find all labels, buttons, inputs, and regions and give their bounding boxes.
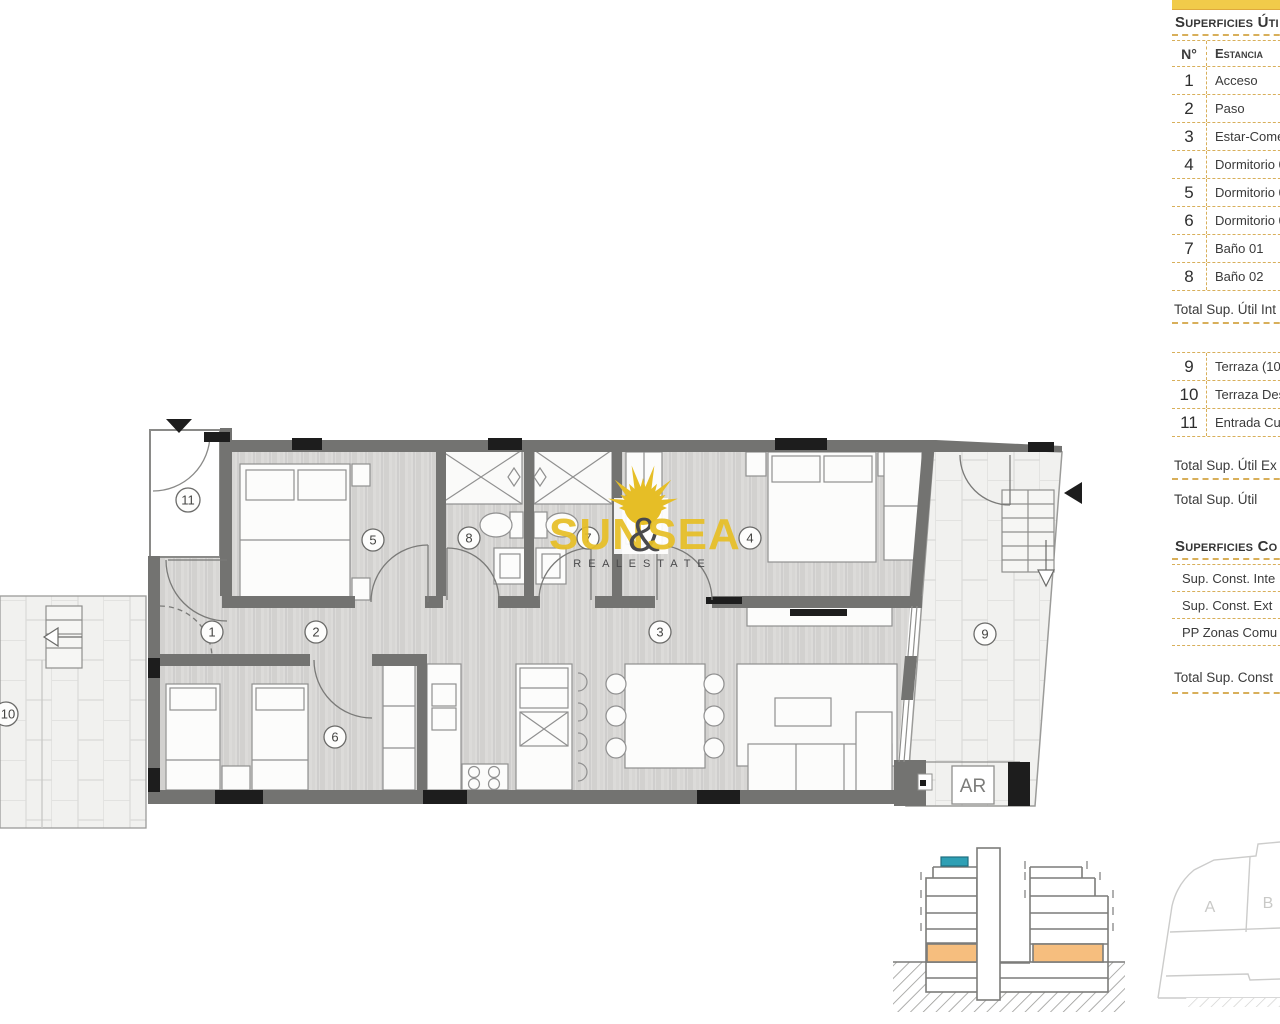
dining-table bbox=[606, 664, 724, 768]
table-row: 5Dormitorio 0 bbox=[1172, 179, 1280, 207]
table-row: Sup. Const. Inte bbox=[1172, 565, 1280, 592]
section-unit-floor-left bbox=[927, 944, 977, 962]
utiles-table-header: N° Estancia bbox=[1172, 41, 1280, 67]
room-badge-1: 1 bbox=[201, 621, 223, 643]
table-row: 6Dormitorio 0 bbox=[1172, 207, 1280, 235]
table-row: 11Entrada Cub bbox=[1172, 409, 1280, 436]
divider bbox=[1172, 692, 1280, 694]
construidas-title: Superficies Co bbox=[1175, 538, 1280, 555]
utiles-title: Superficies Úti bbox=[1175, 14, 1280, 31]
total-exterior-label: Total Sup. Útil Ex bbox=[1174, 458, 1280, 473]
ar-label: AR bbox=[960, 776, 986, 797]
divider bbox=[1172, 478, 1280, 480]
room-badge-3: 3 bbox=[649, 621, 671, 643]
room5-bed bbox=[240, 464, 370, 600]
logo-subtitle: R E A L E S T A T E bbox=[573, 558, 706, 570]
svg-text:5: 5 bbox=[369, 533, 376, 548]
room-badge-6: 6 bbox=[324, 726, 346, 748]
svg-text:1: 1 bbox=[208, 625, 215, 640]
terrace-arrow-icon bbox=[1064, 482, 1082, 504]
svg-text:11: 11 bbox=[181, 493, 195, 508]
construidas-table: Sup. Const. Inte Sup. Const. Ext PP Zona… bbox=[1172, 564, 1280, 646]
table-row: 3Estar-Come bbox=[1172, 123, 1280, 151]
room-badge-10: 10 bbox=[0, 702, 18, 726]
svg-text:2: 2 bbox=[312, 625, 319, 640]
section-unit-marker bbox=[941, 857, 968, 866]
svg-text:10: 10 bbox=[1, 707, 15, 722]
table-row: 7Baño 01 bbox=[1172, 235, 1280, 263]
table-row: Sup. Const. Ext bbox=[1172, 592, 1280, 619]
room4-bed bbox=[746, 452, 898, 562]
total-interior-label: Total Sup. Útil Int bbox=[1174, 302, 1280, 317]
utiles-table: N° Estancia 1Acceso 2Paso 3Estar-Come 4D… bbox=[1172, 40, 1280, 291]
floorplan-drawing: AR bbox=[0, 0, 1280, 1024]
surface-table-panel: Superficies Úti N° Estancia 1Acceso 2Pas… bbox=[1170, 0, 1280, 1024]
total-construida-label: Total Sup. Const bbox=[1174, 670, 1280, 685]
svg-text:4: 4 bbox=[746, 531, 753, 546]
accent-bar bbox=[1172, 0, 1280, 10]
terrace10-steps bbox=[44, 606, 82, 668]
room-badge-2: 2 bbox=[305, 621, 327, 643]
svg-text:8: 8 bbox=[465, 531, 472, 546]
floorplan-sheet: AR bbox=[0, 0, 1280, 1024]
divider bbox=[1172, 558, 1280, 560]
table-row: 2Paso bbox=[1172, 95, 1280, 123]
room-badge-4: 4 bbox=[739, 527, 761, 549]
total-util-label: Total Sup. Útil bbox=[1174, 492, 1280, 507]
svg-text:6: 6 bbox=[331, 730, 338, 745]
exterior-table: 9Terraza (10 10Terraza Des 11Entrada Cub bbox=[1172, 352, 1280, 437]
table-row: 8Baño 02 bbox=[1172, 263, 1280, 290]
room-badge-8: 8 bbox=[458, 527, 480, 549]
divider bbox=[1172, 34, 1280, 36]
svg-text:9: 9 bbox=[981, 627, 988, 642]
col-name-header: Estancia bbox=[1207, 46, 1263, 61]
room-badge-5: 5 bbox=[362, 529, 384, 551]
divider bbox=[1172, 322, 1280, 324]
section-unit-floor-right bbox=[1033, 944, 1103, 962]
col-num-header: N° bbox=[1172, 41, 1207, 66]
table-row: PP Zonas Comu bbox=[1172, 619, 1280, 645]
corner-niche bbox=[918, 774, 932, 790]
svg-text:3: 3 bbox=[656, 625, 663, 640]
room-badge-9: 9 bbox=[974, 623, 996, 645]
table-row: 9Terraza (10 bbox=[1172, 353, 1280, 381]
room6-closet bbox=[383, 664, 415, 790]
table-row: 10Terraza Des bbox=[1172, 381, 1280, 409]
building-section-diagram bbox=[893, 848, 1125, 1012]
room-badge-11: 11 bbox=[176, 488, 200, 512]
logo-word-sea: SEA bbox=[647, 510, 740, 559]
table-row: 1Acceso bbox=[1172, 67, 1280, 95]
table-row: 4Dormitorio 0 bbox=[1172, 151, 1280, 179]
